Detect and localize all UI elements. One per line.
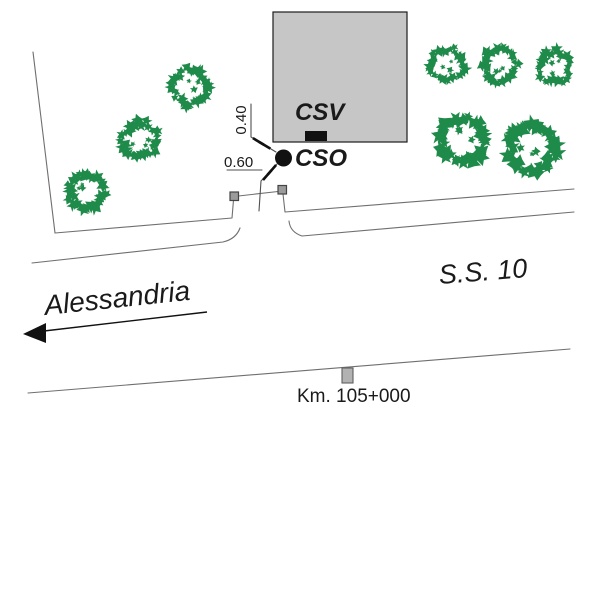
gate-line: [239, 192, 279, 197]
dimension-040-label: 0.40: [233, 100, 251, 140]
site-plan: CSV CSO 0.40 0.60 S.S. 10 Alessandria Km…: [0, 0, 600, 600]
cso-point-marker: [275, 150, 292, 167]
measure-tick: [263, 170, 272, 180]
tree: [113, 113, 163, 165]
tree: [534, 41, 575, 89]
tree: [422, 42, 474, 86]
direction-arrow-head: [23, 323, 46, 343]
tree-leaf: [449, 59, 454, 64]
tree: [475, 42, 524, 91]
road-edge-right-lower: [289, 212, 574, 236]
csv-station-label: CSV: [295, 100, 344, 126]
tree-leaf: [129, 140, 137, 148]
gate-post: [278, 186, 287, 195]
road-edge-right-upper: [283, 189, 574, 212]
dimension-060-label: 0.60: [224, 155, 253, 171]
km-post-marker: [342, 368, 353, 383]
tree-leaf: [439, 63, 447, 71]
dim-060-leader: [259, 164, 277, 211]
tree-leaf: [145, 136, 153, 143]
gate-post: [230, 192, 239, 201]
tree-leaf: [548, 59, 555, 66]
measure-tick: [259, 142, 270, 149]
tree-leaf: [549, 70, 556, 78]
tree-leaf: [189, 84, 200, 94]
tree-leaf: [185, 77, 192, 84]
tree: [429, 110, 494, 173]
csv-sensor-marker: [305, 131, 327, 141]
tree: [163, 59, 218, 115]
kilometer-marker-label: Km. 105+000: [297, 387, 411, 408]
road-edge-left-lower: [32, 228, 240, 263]
tree: [61, 166, 113, 218]
tree: [496, 113, 568, 183]
cso-station-label: CSO: [295, 146, 347, 172]
